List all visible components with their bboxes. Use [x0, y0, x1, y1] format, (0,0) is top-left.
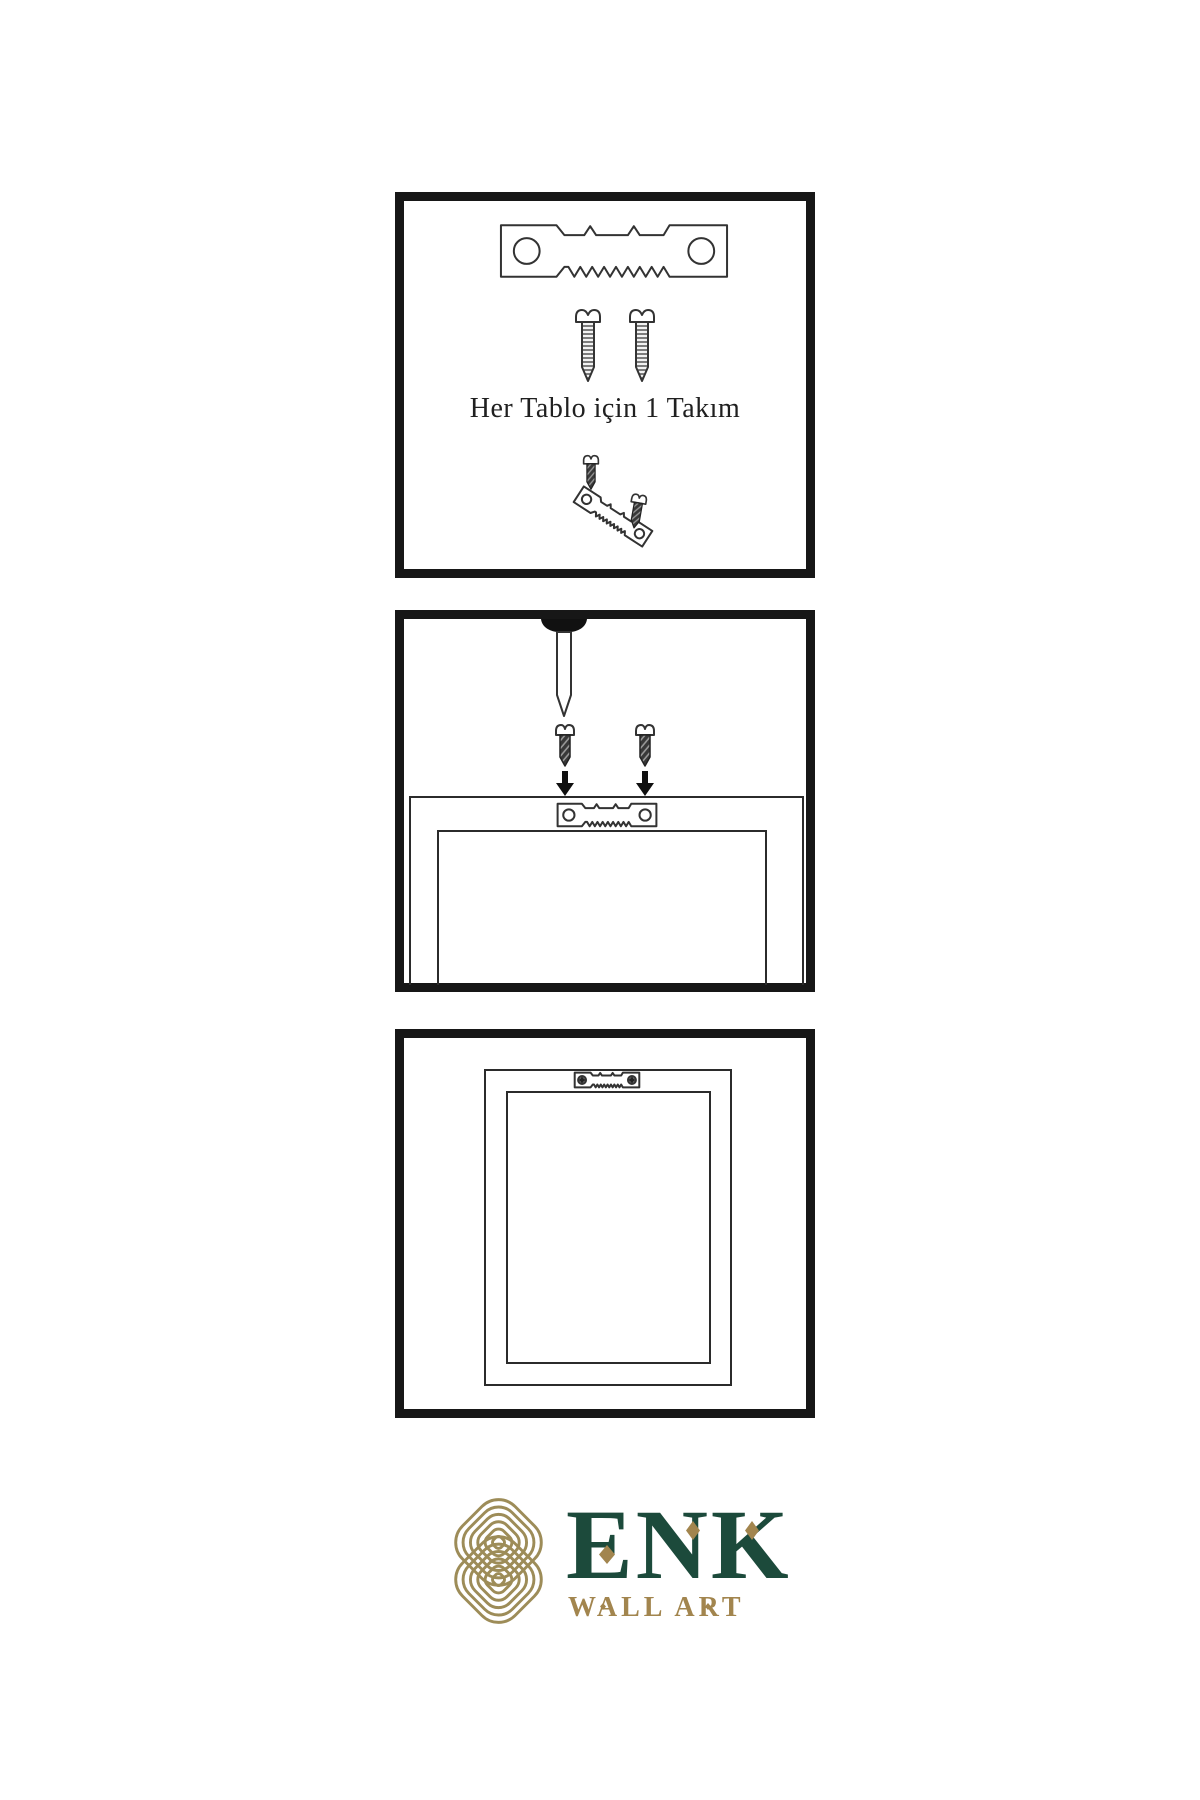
screw-icon: [634, 723, 656, 767]
screw-icon: [627, 308, 657, 382]
frame-back-inner-edge: [437, 830, 767, 985]
sawtooth-hanger-icon: [555, 802, 659, 828]
panel-hardware-kit: Her Tablo için 1 Takım: [395, 192, 815, 578]
panel-attach-hanger: [395, 610, 815, 992]
down-arrow-icon: [635, 771, 655, 797]
small-screw-icon: [582, 454, 600, 490]
screw-icon: [573, 308, 603, 382]
screw-icon: [554, 723, 576, 767]
brand-name: ENK: [566, 1495, 792, 1595]
panel-hanger-mounted: [395, 1029, 815, 1418]
down-arrow-icon: [555, 771, 575, 797]
brand-tagline: WALL ART: [568, 1594, 745, 1622]
kit-caption: Her Tablo için 1 Takım: [404, 393, 806, 425]
frame-back-inner-edge: [506, 1091, 711, 1364]
mounted-sawtooth-hanger-icon: [573, 1071, 641, 1089]
knot-logo-icon: [435, 1488, 562, 1634]
wall-nail-icon: [541, 619, 587, 719]
sawtooth-hanger-icon: [495, 222, 733, 280]
tilted-hanger-group: [570, 448, 680, 548]
instruction-sheet: Her Tablo için 1 Takım ENK WALL ART: [0, 0, 1200, 1800]
